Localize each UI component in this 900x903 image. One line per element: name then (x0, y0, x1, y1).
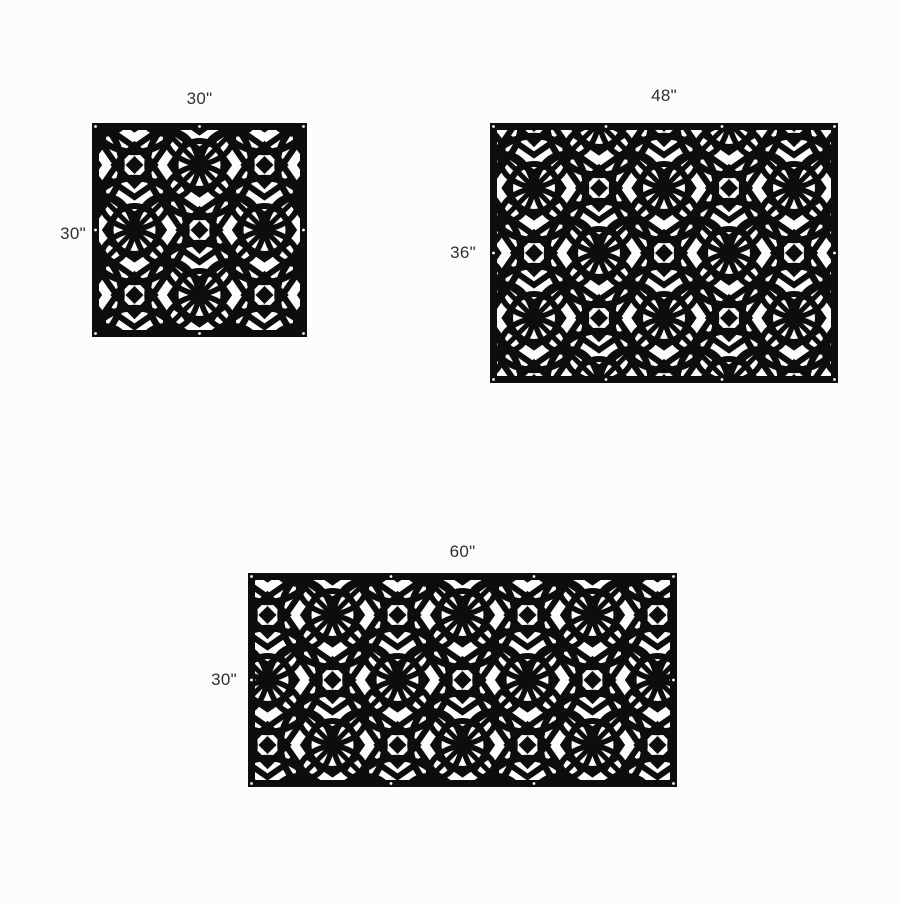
decorative-screen-panel-30x30 (92, 123, 307, 337)
mounting-hole (672, 782, 675, 785)
mounting-hole (94, 125, 97, 128)
mounting-hole (390, 782, 393, 785)
mounting-hole (492, 378, 495, 381)
mounting-hole (302, 332, 305, 335)
height-dimension-label: 30" (20, 224, 86, 244)
mounting-hole (94, 229, 97, 232)
mounting-hole (94, 332, 97, 335)
mounting-hole (250, 575, 253, 578)
mounting-hole (198, 332, 201, 335)
panel-pattern-field (94, 125, 305, 335)
mounting-hole (672, 679, 675, 682)
mounting-hole (833, 252, 836, 255)
panel-pattern-field (492, 125, 836, 381)
mounting-hole (833, 125, 836, 128)
product-size-comparison: 30" 30" 48" 36" 60" 30" (0, 0, 900, 903)
mounting-hole (672, 575, 675, 578)
mounting-hole (250, 782, 253, 785)
decorative-screen-panel-48x36 (490, 123, 838, 383)
mounting-hole (302, 229, 305, 232)
panel-pattern-field (250, 575, 675, 785)
width-dimension-label: 30" (92, 89, 307, 109)
mounting-hole (250, 679, 253, 682)
mounting-hole (198, 125, 201, 128)
mounting-hole (302, 125, 305, 128)
height-dimension-label: 36" (410, 243, 476, 263)
width-dimension-label: 60" (248, 542, 677, 562)
mounting-hole (492, 252, 495, 255)
decorative-screen-panel-60x30 (248, 573, 677, 787)
mounting-hole (533, 575, 536, 578)
mounting-hole (833, 378, 836, 381)
mounting-hole (533, 782, 536, 785)
panel-artwork (490, 123, 838, 383)
height-dimension-label: 30" (171, 670, 237, 690)
mounting-hole (492, 125, 495, 128)
mounting-hole (390, 575, 393, 578)
panel-artwork (92, 123, 307, 337)
mounting-hole (605, 125, 608, 128)
mounting-hole (721, 125, 724, 128)
mounting-hole (605, 378, 608, 381)
width-dimension-label: 48" (490, 86, 838, 106)
panel-artwork (248, 573, 677, 787)
mounting-hole (721, 378, 724, 381)
